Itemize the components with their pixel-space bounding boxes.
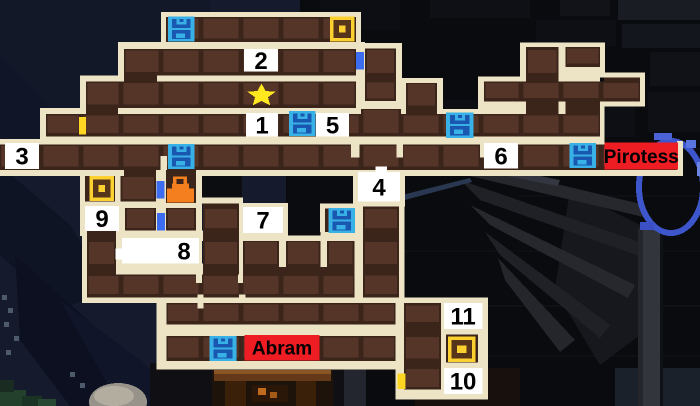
svg-text:Pirotess: Pirotess	[604, 147, 679, 168]
svg-text:5: 5	[326, 112, 339, 139]
svg-text:11: 11	[450, 304, 475, 331]
svg-text:6: 6	[494, 143, 507, 170]
svg-text:8: 8	[177, 238, 190, 265]
svg-text:9: 9	[95, 206, 108, 233]
svg-text:7: 7	[256, 208, 269, 235]
svg-text:2: 2	[254, 48, 267, 75]
svg-text:3: 3	[15, 144, 28, 171]
svg-text:1: 1	[255, 112, 268, 139]
svg-text:Abram: Abram	[252, 339, 312, 360]
svg-text:4: 4	[372, 174, 386, 201]
svg-text:10: 10	[450, 369, 477, 396]
